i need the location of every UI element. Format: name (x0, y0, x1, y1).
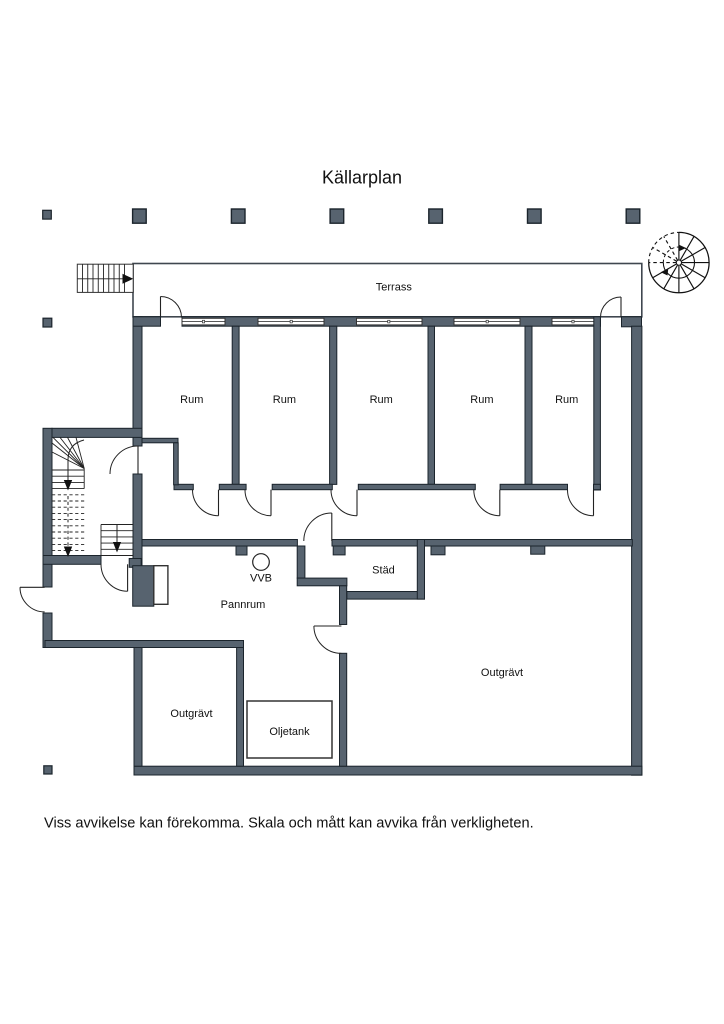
svg-text:Rum: Rum (470, 394, 493, 406)
svg-text:Outgrävt: Outgrävt (170, 708, 212, 720)
svg-text:Oljetank: Oljetank (269, 726, 310, 738)
svg-text:Rum: Rum (555, 394, 578, 406)
svg-text:Städ: Städ (372, 564, 395, 576)
svg-text:Pannrum: Pannrum (221, 599, 266, 611)
svg-text:Källarplan: Källarplan (322, 168, 402, 188)
svg-text:Rum: Rum (370, 394, 393, 406)
svg-text:Rum: Rum (180, 394, 203, 406)
svg-text:Terrass: Terrass (376, 282, 413, 294)
svg-text:Rum: Rum (273, 394, 296, 406)
svg-text:Outgrävt: Outgrävt (481, 667, 523, 679)
svg-text:Viss avvikelse kan förekomma.: Viss avvikelse kan förekomma. Skala och … (44, 816, 534, 832)
svg-text:VVB: VVB (250, 572, 272, 584)
